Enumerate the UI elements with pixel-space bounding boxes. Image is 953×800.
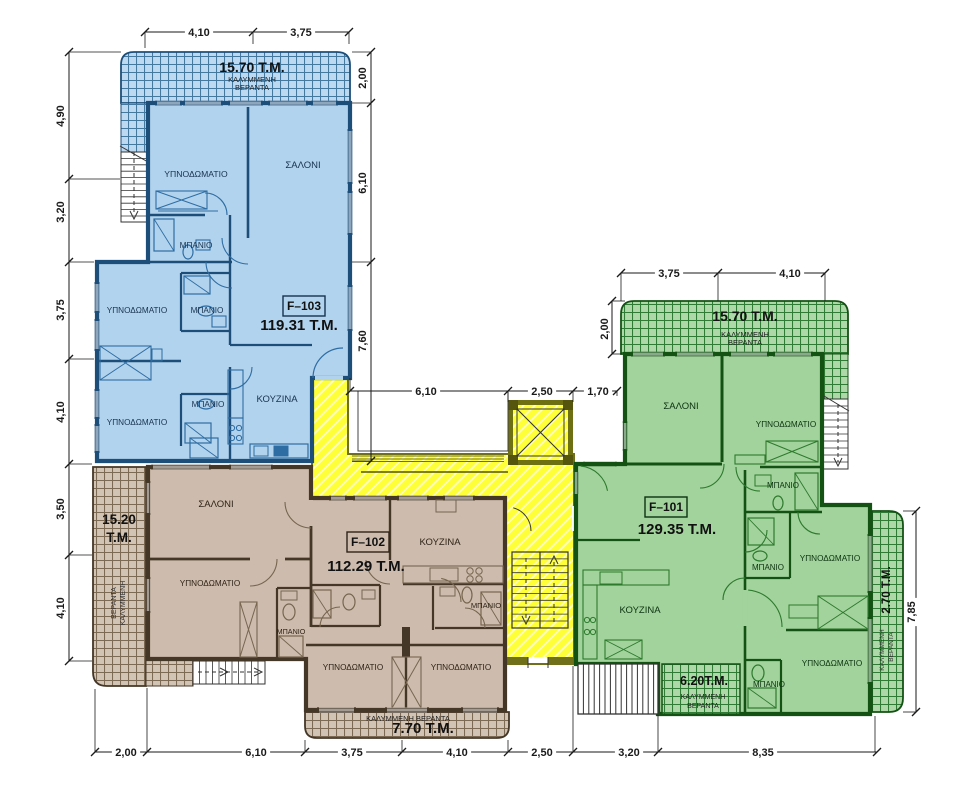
- svg-text:3,75: 3,75: [290, 27, 311, 39]
- svg-text:ΣΑΛΟΝΙ: ΣΑΛΟΝΙ: [198, 499, 233, 510]
- svg-text:ΥΠΝΟΔΩΜΑΤΙΟ: ΥΠΝΟΔΩΜΑΤΙΟ: [180, 579, 240, 588]
- svg-text:15.70 Τ.Μ.: 15.70 Τ.Μ.: [219, 59, 284, 75]
- svg-text:ΒΕΡΑΝΤΑ: ΒΕΡΑΝΤΑ: [111, 587, 118, 619]
- svg-text:ΚΟΥΖΙΝΑ: ΚΟΥΖΙΝΑ: [256, 394, 298, 405]
- svg-text:15.20: 15.20: [102, 512, 136, 527]
- svg-text:ΒΕΡΑΝΤΑ: ΒΕΡΑΝΤΑ: [728, 338, 762, 347]
- svg-text:ΚΑΛΥΜΜΕΝΗ: ΚΑΛΥΜΜΕΝΗ: [879, 629, 886, 671]
- svg-text:3,75: 3,75: [658, 268, 679, 280]
- svg-text:3,20: 3,20: [55, 201, 67, 222]
- svg-text:ΜΠΑΝΙΟ: ΜΠΑΝΙΟ: [191, 306, 224, 315]
- svg-text:2,50: 2,50: [531, 747, 552, 759]
- svg-text:ΜΠΑΝΙΟ: ΜΠΑΝΙΟ: [471, 601, 501, 610]
- svg-text:2,00: 2,00: [115, 747, 136, 759]
- svg-text:6,10: 6,10: [357, 172, 369, 193]
- svg-text:4,10: 4,10: [188, 27, 209, 39]
- svg-text:ΚΟΥΖΙΝΑ: ΚΟΥΖΙΝΑ: [419, 537, 461, 548]
- svg-text:ΣΑΛΟΝΙ: ΣΑΛΟΝΙ: [285, 160, 320, 171]
- svg-text:ΚΑΛΥΜΜΕΝΗ: ΚΑΛΥΜΜΕΝΗ: [120, 581, 127, 626]
- svg-text:2.70 Τ.Μ.: 2.70 Τ.Μ.: [881, 566, 893, 613]
- svg-text:ΥΠΝΟΔΩΜΑΤΙΟ: ΥΠΝΟΔΩΜΑΤΙΟ: [756, 420, 816, 429]
- svg-text:3,75: 3,75: [341, 747, 362, 759]
- svg-text:2,00: 2,00: [357, 67, 369, 88]
- svg-text:ΚΟΥΖΙΝΑ: ΚΟΥΖΙΝΑ: [619, 605, 661, 616]
- svg-text:6,10: 6,10: [415, 386, 436, 398]
- svg-text:ΒΕΡΑΝΤΑ: ΒΕΡΑΝΤΑ: [687, 703, 719, 710]
- svg-text:6.20Τ.Μ.: 6.20Τ.Μ.: [680, 674, 728, 688]
- svg-text:129.35 Τ.Μ.: 129.35 Τ.Μ.: [638, 521, 716, 538]
- svg-text:ΜΠΑΝΙΟ: ΜΠΑΝΙΟ: [767, 481, 799, 490]
- svg-text:ΜΠΑΝΙΟ: ΜΠΑΝΙΟ: [277, 627, 306, 636]
- svg-text:8,35: 8,35: [752, 747, 773, 759]
- svg-text:ΥΠΝΟΔΩΜΑΤΙΟ: ΥΠΝΟΔΩΜΑΤΙΟ: [800, 554, 860, 563]
- svg-text:6,10: 6,10: [245, 747, 266, 759]
- svg-text:4,10: 4,10: [779, 268, 800, 280]
- svg-text:ΥΠΝΟΔΩΜΑΤΙΟ: ΥΠΝΟΔΩΜΑΤΙΟ: [802, 659, 862, 668]
- svg-text:2,50: 2,50: [531, 386, 552, 398]
- svg-text:4,10: 4,10: [55, 597, 67, 618]
- svg-text:Τ.Μ.: Τ.Μ.: [106, 530, 132, 545]
- svg-text:119.31 Τ.Μ.: 119.31 Τ.Μ.: [260, 317, 338, 334]
- svg-text:3,20: 3,20: [618, 747, 639, 759]
- svg-text:ΣΑΛΟΝΙ: ΣΑΛΟΝΙ: [663, 401, 698, 412]
- svg-text:2,00: 2,00: [599, 318, 611, 339]
- svg-text:ΥΠΝΟΔΩΜΑΤΙΟ: ΥΠΝΟΔΩΜΑΤΙΟ: [164, 169, 228, 179]
- svg-text:7.70 Τ.Μ.: 7.70 Τ.Μ.: [392, 720, 454, 737]
- svg-text:ΥΠΝΟΔΩΜΑΤΙΟ: ΥΠΝΟΔΩΜΑΤΙΟ: [323, 663, 383, 672]
- svg-text:F–101: F–101: [649, 500, 683, 514]
- svg-text:ΜΠΑΝΙΟ: ΜΠΑΝΙΟ: [752, 563, 784, 572]
- svg-text:4,90: 4,90: [55, 105, 67, 126]
- svg-text:1,70: 1,70: [587, 386, 608, 398]
- svg-text:ΜΠΑΝΙΟ: ΜΠΑΝΙΟ: [192, 400, 225, 409]
- svg-text:7,60: 7,60: [357, 330, 369, 351]
- svg-text:ΜΠΑΝΙΟ: ΜΠΑΝΙΟ: [753, 680, 785, 689]
- svg-text:ΒΕΡΑΝΤΑ: ΒΕΡΑΝΤΑ: [888, 632, 895, 662]
- svg-text:3,50: 3,50: [55, 498, 67, 519]
- svg-text:15.70 Τ.Μ.: 15.70 Τ.Μ.: [712, 308, 777, 324]
- svg-text:ΥΠΝΟΔΩΜΑΤΙΟ: ΥΠΝΟΔΩΜΑΤΙΟ: [107, 306, 167, 315]
- svg-text:ΚΑΛΥΜΜΕΝΗ: ΚΑΛΥΜΜΕΝΗ: [681, 694, 726, 701]
- svg-text:112.29 Τ.Μ.: 112.29 Τ.Μ.: [327, 558, 405, 575]
- svg-text:ΥΠΝΟΔΩΜΑΤΙΟ: ΥΠΝΟΔΩΜΑΤΙΟ: [431, 663, 491, 672]
- svg-text:3,75: 3,75: [55, 299, 67, 320]
- svg-text:4,10: 4,10: [446, 747, 467, 759]
- svg-text:ΜΠΑΝΙΟ: ΜΠΑΝΙΟ: [180, 241, 213, 250]
- svg-text:F–103: F–103: [287, 299, 321, 313]
- svg-text:4,10: 4,10: [55, 401, 67, 422]
- svg-text:ΒΕΡΑΝΤΑ: ΒΕΡΑΝΤΑ: [235, 83, 269, 92]
- svg-text:F–102: F–102: [351, 535, 385, 549]
- svg-text:ΥΠΝΟΔΩΜΑΤΙΟ: ΥΠΝΟΔΩΜΑΤΙΟ: [107, 418, 167, 427]
- svg-text:7,85: 7,85: [906, 601, 918, 622]
